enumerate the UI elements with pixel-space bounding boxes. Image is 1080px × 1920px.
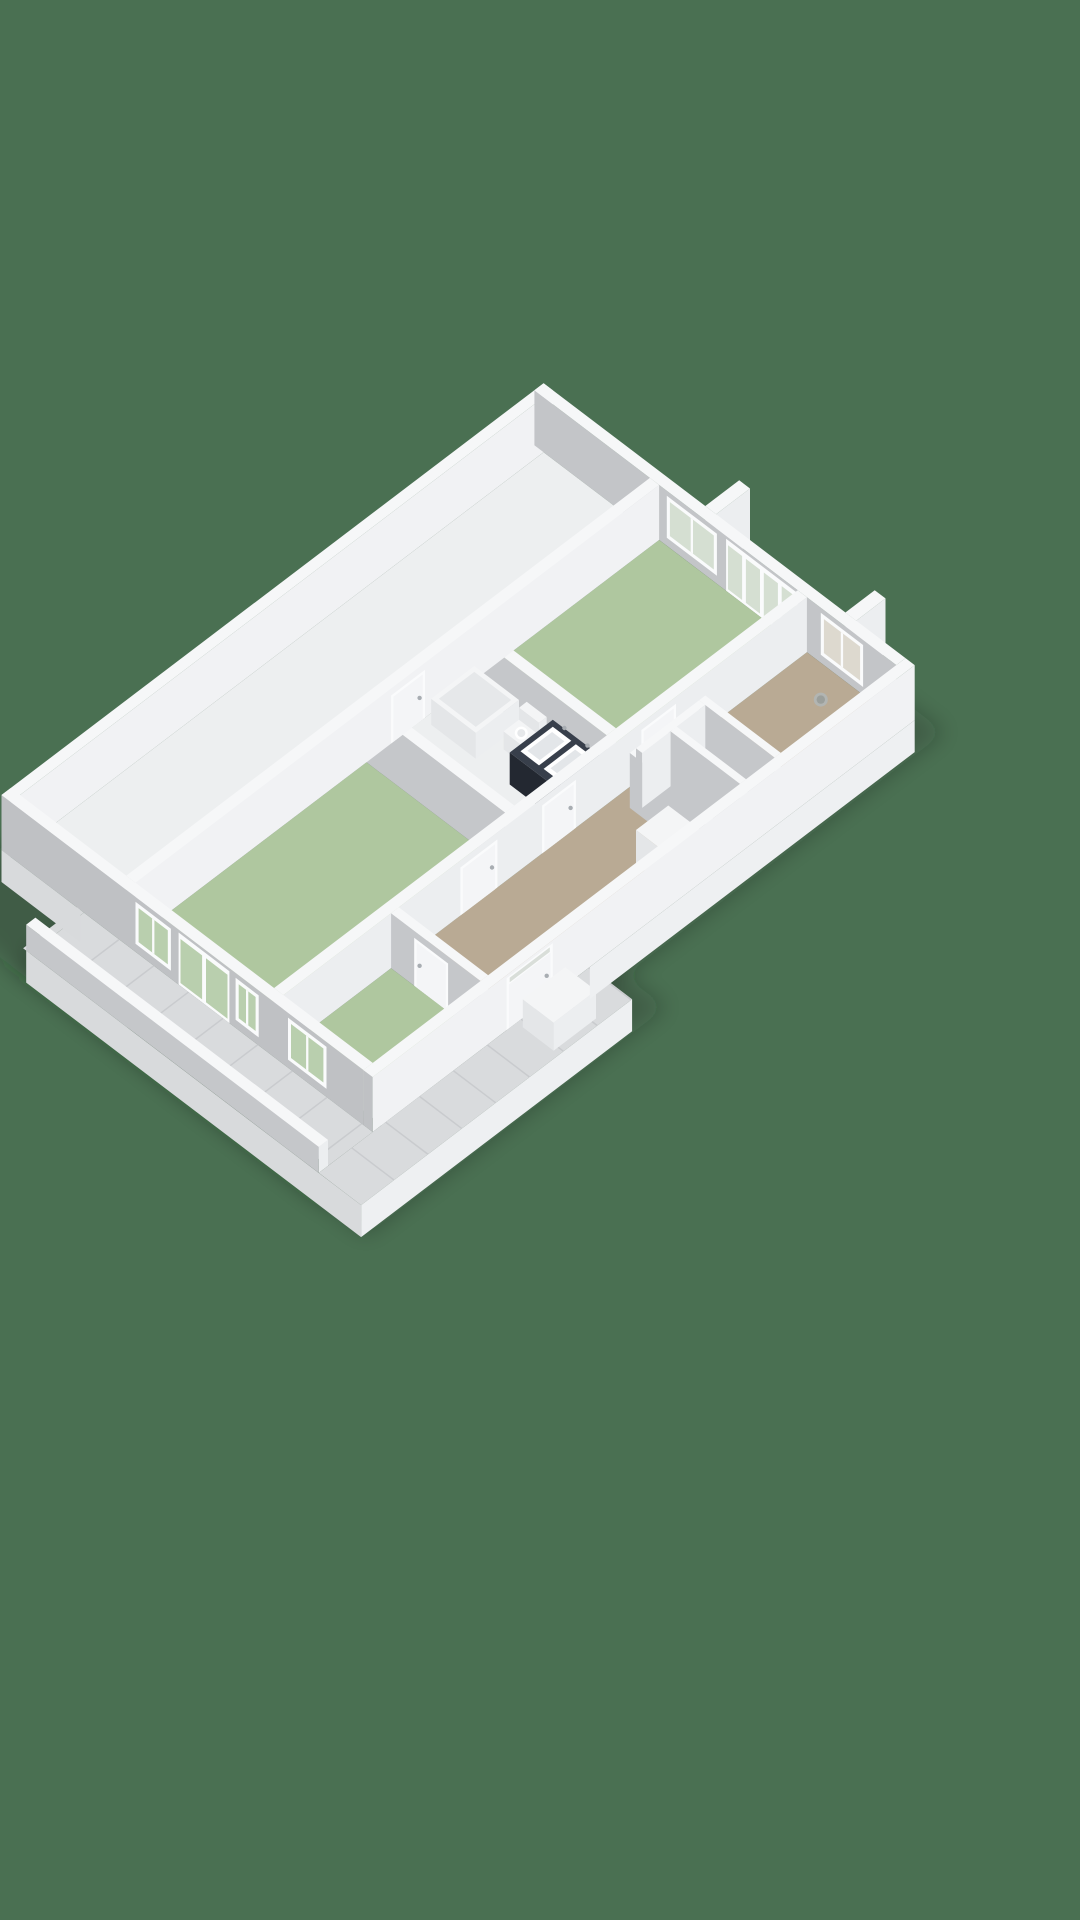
floorplan-canvas: [0, 0, 1080, 1920]
plant-pot: [814, 693, 828, 707]
floorplan-3d-render: [0, 0, 1080, 1920]
